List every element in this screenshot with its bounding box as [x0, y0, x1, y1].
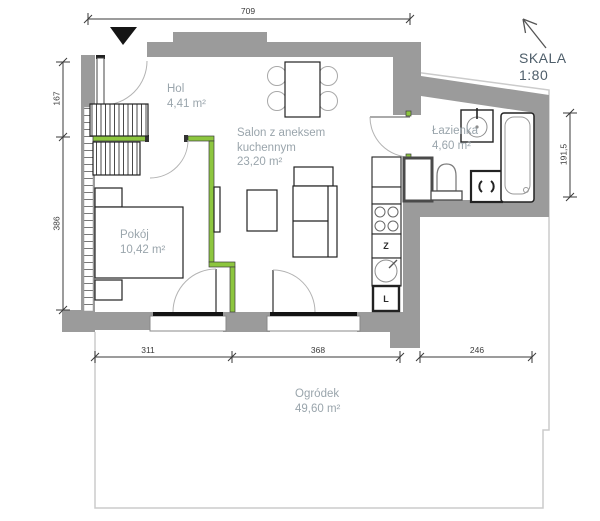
wall-bath-left-upper: [393, 42, 421, 115]
dimension-left-lower: 386: [52, 213, 63, 235]
room-name: Salon z aneksem: [237, 126, 325, 141]
room-label-hol: Hol 4,41 m²: [167, 82, 206, 111]
door-swing-arc: [370, 117, 410, 157]
wardrobe-pokoj: [93, 142, 140, 175]
room-name: kuchennym: [237, 141, 325, 156]
fridge: L: [373, 286, 399, 311]
coffee-table: [247, 190, 277, 231]
nightstand: [95, 280, 122, 300]
room-name: Pokój: [120, 228, 165, 243]
room-name: Ogródek: [295, 387, 340, 402]
green-wall-caps: [145, 135, 188, 142]
toilet-bowl: [437, 164, 456, 191]
toilet: [431, 164, 462, 200]
room-area: 23,20 m²: [237, 155, 325, 170]
wardrobe-hol: [90, 104, 148, 136]
bathroom-door: [370, 117, 410, 157]
wall-top-slab: [173, 32, 267, 42]
scale-value: 1:80: [519, 67, 567, 84]
north-arrow-icon: [523, 19, 546, 48]
room-area: 49,60 m²: [295, 402, 340, 417]
bathtub-basin: [505, 117, 530, 194]
chair: [319, 92, 338, 111]
green-wall-hol: [93, 136, 148, 141]
glass-door-left: [153, 312, 223, 316]
room-area: 4,60 m²: [432, 139, 478, 154]
salon-garden-door: [273, 270, 315, 312]
wall-bottom-right: [357, 312, 420, 332]
room-name: Hol: [167, 82, 206, 97]
kitchen-units: Z L: [372, 157, 432, 311]
nightstand: [95, 188, 122, 207]
green-wall-lower: [230, 267, 235, 312]
wall-cap: [184, 135, 188, 142]
room-label-ogrodek: Ogródek 49,60 m²: [295, 387, 340, 416]
washing-machine: [471, 171, 502, 202]
kitchen-sink: [372, 258, 401, 286]
kitchen-counter: [372, 157, 401, 187]
dimension-left-upper: 167: [52, 88, 63, 110]
shaft: [404, 158, 432, 201]
sofa: [293, 167, 337, 257]
window-sill-right: [267, 316, 360, 331]
dishwasher: Z: [372, 234, 401, 258]
wall-bottom-pier: [223, 312, 270, 332]
pokoj-door: [150, 140, 188, 178]
door-swing-arc: [150, 140, 188, 178]
wall-top: [147, 42, 407, 57]
glass-door-right: [270, 312, 357, 316]
dining-set: [268, 62, 338, 117]
entrance-door: [96, 55, 147, 106]
chair: [268, 67, 287, 86]
door-swing-arc: [103, 61, 147, 105]
dimension-right: 191,5: [559, 141, 570, 169]
green-marker-bath-door-top: [406, 111, 411, 116]
green-wall-jog: [209, 262, 235, 267]
wall-bottom-band: [95, 312, 153, 330]
toilet-tank: [431, 191, 462, 200]
entrance-arrow-icon: [110, 27, 137, 45]
dimension-bottom-left: 311: [128, 345, 168, 356]
room-area: 10,42 m²: [120, 243, 165, 258]
dimension-top: 709: [230, 6, 266, 17]
fridge-label: L: [383, 294, 389, 304]
washing-machine-body: [471, 171, 502, 202]
bathroom-fixtures: [431, 108, 534, 202]
door-leaf: [97, 58, 104, 106]
green-wall-vertical: [209, 141, 214, 262]
bathtub: [501, 113, 534, 202]
sofa-armrest: [294, 167, 333, 186]
dishwasher-label: Z: [383, 241, 389, 251]
scale-indicator: SKALA 1:80: [519, 50, 567, 83]
room-name: Łazienka: [432, 124, 478, 139]
dining-table: [285, 62, 320, 117]
chair: [268, 92, 287, 111]
scale-label: SKALA: [519, 50, 567, 67]
chair: [319, 67, 338, 86]
door-swing-arc: [273, 270, 315, 312]
wall-bottom-left-corner: [62, 310, 95, 332]
wall-left-layer-ticks: [84, 107, 93, 311]
wall-bottom-right-foot: [390, 332, 420, 348]
dimension-bottom-right: 246: [457, 345, 497, 356]
green-wall-corner: [188, 136, 214, 141]
window-sill-left: [150, 316, 226, 331]
floor-plan: Z L: [0, 0, 600, 521]
dimension-bottom-center: 368: [298, 345, 338, 356]
room-label-pokoj: Pokój 10,42 m²: [120, 228, 165, 257]
tv-panel: [214, 187, 220, 232]
hob: [372, 204, 401, 234]
kitchen-counter: [372, 187, 401, 204]
room-label-lazienka: Łazienka 4,60 m²: [432, 124, 478, 153]
room-label-salon: Salon z aneksem kuchennym 23,20 m²: [237, 126, 325, 170]
floor-plan-svg: Z L: [0, 0, 600, 521]
room-area: 4,41 m²: [167, 97, 206, 112]
